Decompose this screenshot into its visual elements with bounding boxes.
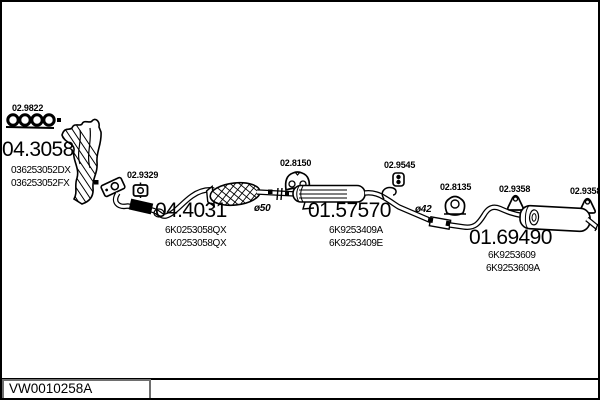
drawing-code: VW0010258A — [9, 381, 92, 396]
hanger-code-mid[interactable]: 02.8135 — [440, 183, 471, 192]
gasket-code-downpipe[interactable]: 02.9329 — [127, 171, 158, 180]
part-code-front-pipe[interactable]: 04.4031 — [155, 200, 227, 221]
clamp-code-mid[interactable]: 02.9545 — [384, 161, 415, 170]
pipe-clamp-icon — [393, 173, 404, 186]
cat-outlet-connector-drawing — [257, 188, 296, 200]
oem-number: 6K9253609 — [488, 251, 536, 261]
part-code-manifold[interactable]: 04.3058 — [2, 139, 74, 160]
downpipe-flange-icon — [100, 177, 125, 197]
oem-number: 6K9253409A — [329, 226, 383, 236]
manifold-gasket-icon — [6, 115, 54, 128]
bolt-mark-icon — [94, 180, 99, 185]
drawing-code-box: VW0010258A — [2, 379, 151, 400]
part-code-center-muffler[interactable]: 01.57570 — [308, 200, 391, 221]
pipe-diameter-label: ø42 — [415, 205, 431, 215]
hanger-code-rear-1[interactable]: 02.9358 — [499, 185, 530, 194]
oem-number: 6K9253409E — [329, 239, 383, 249]
mount-grommet-icon — [444, 197, 466, 216]
oem-number: 6K9253609A — [486, 264, 540, 274]
hanger-code-center[interactable]: 02.8150 — [280, 159, 311, 168]
exhaust-diagram-page: 02.9822 04.3058 036253052DX 036253052FX … — [0, 0, 600, 400]
oem-number: 6K0253058QX — [165, 239, 226, 249]
flex-section-icon — [130, 204, 152, 209]
hanger-code-rear-2[interactable]: 02.9358 — [570, 187, 600, 196]
flange-gasket-icon — [134, 183, 148, 199]
gasket-code-manifold[interactable]: 02.9822 — [12, 104, 43, 113]
oem-number: 036253052FX — [11, 179, 69, 189]
triangle-hanger-icon — [508, 196, 524, 210]
oem-number: 036253052DX — [11, 166, 71, 176]
part-code-rear-muffler[interactable]: 01.69490 — [469, 227, 552, 248]
pipe-diameter-label: ø50 — [254, 204, 270, 214]
bolt-mark-icon — [57, 118, 61, 122]
oem-number: 6K0253058QX — [165, 226, 226, 236]
exhaust-diagram-drawing — [2, 2, 600, 400]
